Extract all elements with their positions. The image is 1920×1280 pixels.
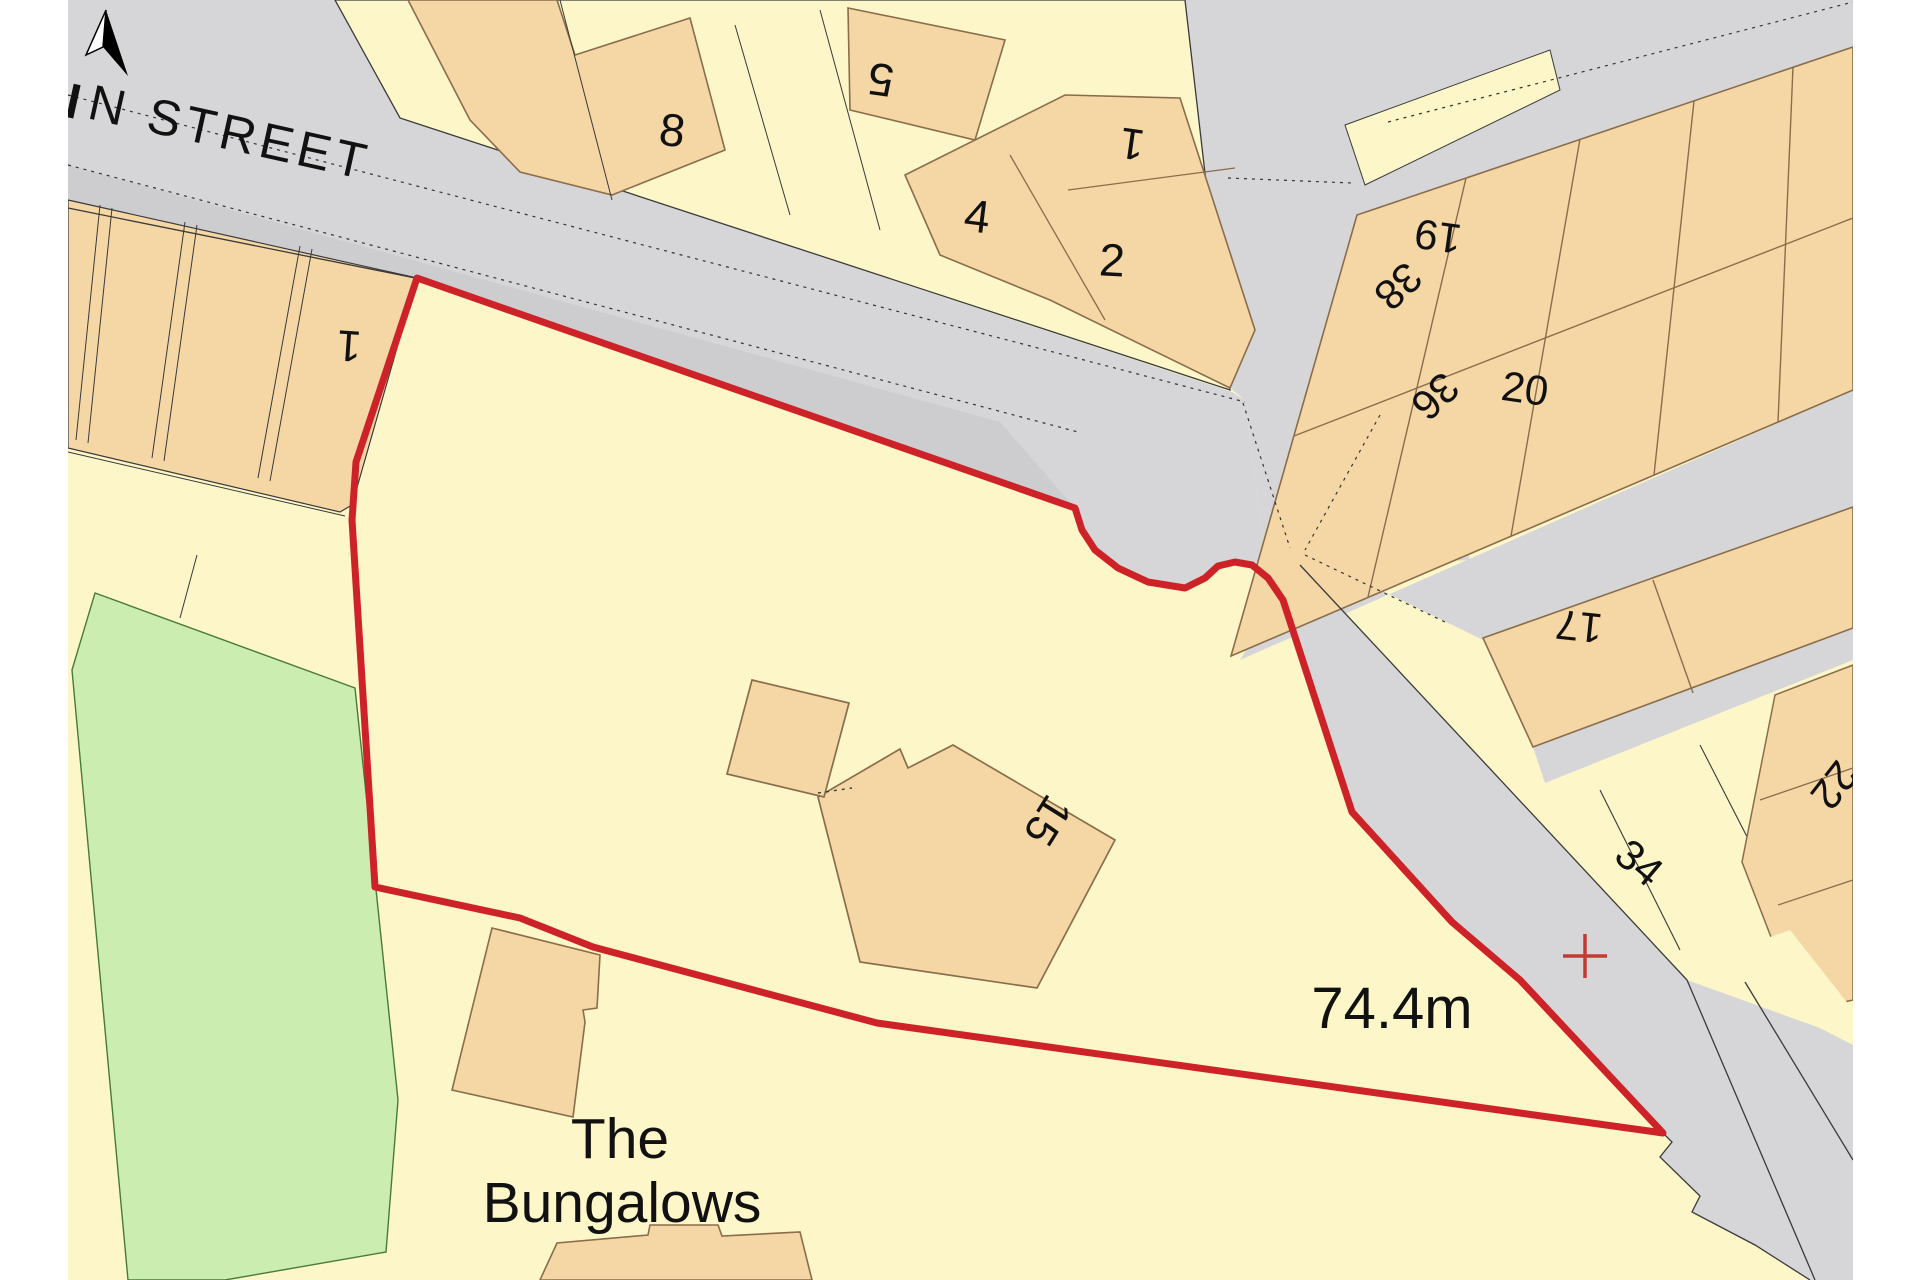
parcel-number-17: 17 [1553,601,1604,653]
map-canvas: N STREET 8 5 4 1 2 1 19 38 36 20 17 34 2… [0,0,1920,1280]
place-label-line1: The [571,1107,669,1171]
parcel-number-2: 2 [1098,233,1126,286]
parcel-number-1b: 1 [335,320,363,371]
place-label-line2: Bungalows [483,1171,762,1235]
parcel-number-19: 19 [1412,210,1465,263]
spot-height-label: 74.4m [1311,976,1472,1041]
parcel-number-20: 20 [1499,362,1552,415]
site-plan-map: N STREET 8 5 4 1 2 1 19 38 36 20 17 34 2… [0,0,1920,1280]
green-space [72,593,398,1280]
right-margin [1853,0,1920,1280]
left-margin [0,0,68,1280]
